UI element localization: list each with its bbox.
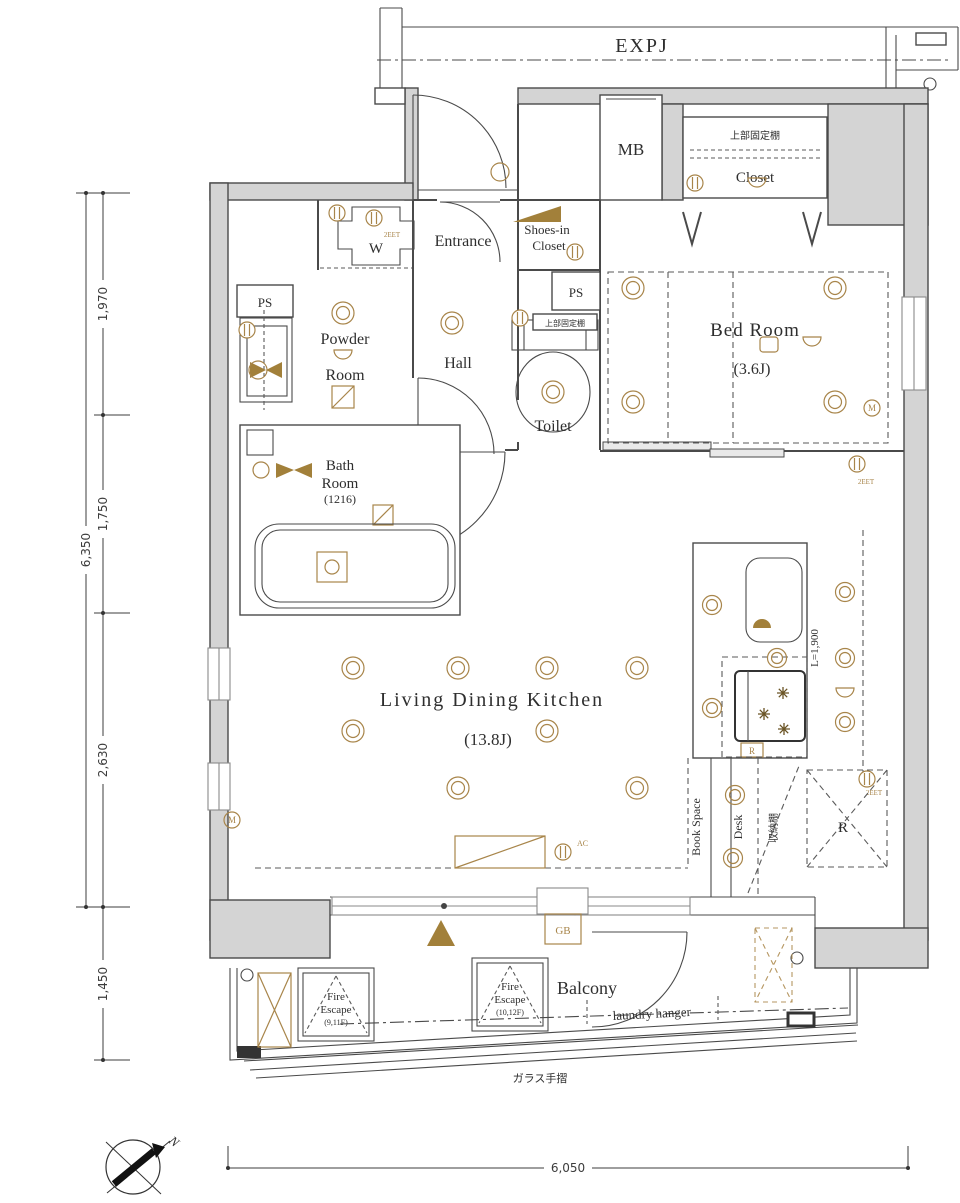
- exit-triangle-marker: [427, 920, 455, 946]
- downlight-icon: [724, 849, 743, 868]
- svg-text:(10,12F): (10,12F): [496, 1008, 524, 1017]
- valve-icon: [266, 362, 282, 378]
- dim-left-2: 1,750: [96, 497, 110, 531]
- downlight-icon: [441, 312, 463, 334]
- downlight-icon: [836, 649, 855, 668]
- bath-room-label: Room: [322, 476, 359, 492]
- fire-escape-hatch-2: Fire Escape (10,12F): [472, 958, 548, 1031]
- junction-marker: [491, 163, 509, 181]
- living-dining-kitchen: Living Dining Kitchen (13.8J) AC M: [224, 657, 688, 868]
- svg-text:M: M: [228, 815, 236, 825]
- dim-left-total: 6,350: [79, 533, 93, 567]
- downlight-icon: [536, 720, 558, 742]
- gb-label: GB: [555, 925, 570, 937]
- outlet-icon: [239, 322, 255, 338]
- dim-bottom-total: 6,050: [551, 1161, 585, 1175]
- drain-box: [237, 1046, 261, 1058]
- toilet-shelf-label: 上部固定棚: [545, 318, 585, 328]
- entrance-inner-door-swing: [440, 202, 500, 262]
- bedroom-label: Bed Room: [710, 320, 800, 341]
- svg-text:(9,11F): (9,11F): [324, 1018, 348, 1027]
- downlight-icon: [622, 391, 644, 413]
- outlet-icon: [512, 310, 528, 326]
- toilet-label: Toilet: [534, 418, 572, 435]
- outlet-icon: [567, 244, 583, 260]
- bath-room: Bath Room (1216): [240, 425, 460, 615]
- north-label: N: [165, 1132, 183, 1151]
- bath-size-label: (1216): [324, 492, 356, 506]
- counter-length-label: L=1,900: [809, 629, 821, 667]
- balcony-label: Balcony: [557, 978, 617, 998]
- washer-label: W: [369, 241, 384, 257]
- downlight-icon: [726, 786, 745, 805]
- downlight-icon: [542, 381, 564, 403]
- dim-left-4: 1,450: [96, 967, 110, 1001]
- svg-text:M: M: [868, 403, 876, 413]
- entrance-door-swing: [413, 95, 506, 188]
- entrance-label: Entrance: [435, 233, 492, 250]
- hall: Hall: [441, 312, 472, 372]
- refrigerator-label: R: [838, 820, 848, 836]
- downlight-icon: [626, 657, 648, 679]
- downlight-icon: [626, 777, 648, 799]
- outlet-label: 2EET: [866, 789, 883, 797]
- svg-text:Escape: Escape: [320, 1004, 351, 1016]
- dim-left-1: 1,970: [96, 287, 110, 321]
- floor-plan-page: EXPJ: [0, 0, 960, 1203]
- compass: N: [106, 1132, 183, 1194]
- downlight-icon: [342, 657, 364, 679]
- outlet-icon: [849, 456, 865, 472]
- outlet-label: 2EET: [384, 231, 401, 239]
- fixture-icon: [334, 350, 352, 359]
- desk-storage-area: Book Space Desk 収納棚 R: [689, 758, 887, 897]
- downlight-icon: [836, 713, 855, 732]
- mb-label: MB: [618, 140, 644, 159]
- toilet-room: 上部固定棚 Toilet: [512, 310, 598, 435]
- expj-label: EXPJ: [615, 35, 669, 57]
- gas-stove: [735, 671, 805, 741]
- closet-door-mark: [683, 212, 701, 244]
- downlight-icon: [536, 657, 558, 679]
- ps-left-label: PS: [258, 295, 272, 310]
- downlight-icon: [447, 657, 469, 679]
- closet-door-mark: [803, 212, 821, 244]
- kitchen: R L=1,900 2EET: [693, 530, 883, 797]
- fixture-icon: [836, 688, 854, 697]
- outlet-icon: [329, 205, 345, 221]
- shoes-closet-label: Closet: [532, 238, 566, 253]
- downlight-icon: [836, 583, 855, 602]
- svg-text:Escape: Escape: [494, 994, 525, 1006]
- ps-right-label: PS: [569, 285, 583, 300]
- downlight-icon: [332, 302, 354, 324]
- drain-box: [788, 1013, 814, 1026]
- desk-label: Desk: [731, 815, 745, 840]
- hall-label: Hall: [444, 355, 472, 372]
- floor-plan-drawing: EXPJ: [0, 0, 960, 1203]
- ldk-size-label: (13.8J): [464, 730, 512, 749]
- bedroom-closet: 上部固定棚 Closet: [683, 117, 827, 198]
- ldk-label: Living Dining Kitchen: [380, 689, 604, 711]
- laundry-hanger-label: laundry hanger: [612, 1004, 692, 1023]
- shoes-shelf-wedge: [513, 206, 561, 222]
- storage-shelf-label: 収納棚: [767, 813, 780, 843]
- expansion-joint-strip: EXPJ: [377, 8, 958, 90]
- dim-left-3: 2,630: [96, 743, 110, 777]
- powder-room-label: Room: [325, 367, 365, 384]
- bedroom-sliding-door: [710, 449, 784, 457]
- book-space-label: Book Space: [689, 798, 703, 856]
- svg-text:Fire: Fire: [327, 991, 345, 1003]
- bedroom-size-label: (3.6J): [734, 361, 771, 378]
- bath-room-label: Bath: [326, 458, 355, 474]
- outlet-icon: [859, 771, 875, 787]
- shoes-closet-label: Shoes-in: [524, 222, 570, 237]
- downlight-icon: [824, 277, 846, 299]
- fire-escape-hatch-1: Fire Escape (9,11F): [298, 968, 374, 1041]
- outlet-icon: [687, 175, 703, 191]
- outlet-icon: [366, 210, 382, 226]
- downlight-icon: [824, 391, 846, 413]
- compass-needle: [114, 1151, 154, 1184]
- window-post: [537, 888, 588, 914]
- outlet-label: 2EET: [858, 478, 875, 486]
- meter-marker: M: [864, 400, 880, 416]
- window-lock-marker: [441, 903, 447, 909]
- closet-shelf-label: 上部固定棚: [730, 129, 780, 142]
- powder-room: Powder Room: [321, 302, 371, 408]
- svg-text:Fire: Fire: [501, 981, 519, 993]
- glass-handrail-label: ガラス手摺: [513, 1071, 568, 1085]
- downlight-icon: [447, 777, 469, 799]
- powder-room-label: Powder: [321, 331, 371, 348]
- ac-label: AC: [577, 839, 588, 848]
- fixture-icon: [803, 337, 821, 346]
- downlight-icon: [342, 720, 364, 742]
- range-label: R: [749, 746, 755, 756]
- ac-outlet-icon: [555, 844, 571, 860]
- meter-box: MB: [600, 95, 662, 200]
- downlight-icon: [622, 277, 644, 299]
- entrance-area: Entrance Shoes-in Closet W 2EET: [320, 163, 583, 268]
